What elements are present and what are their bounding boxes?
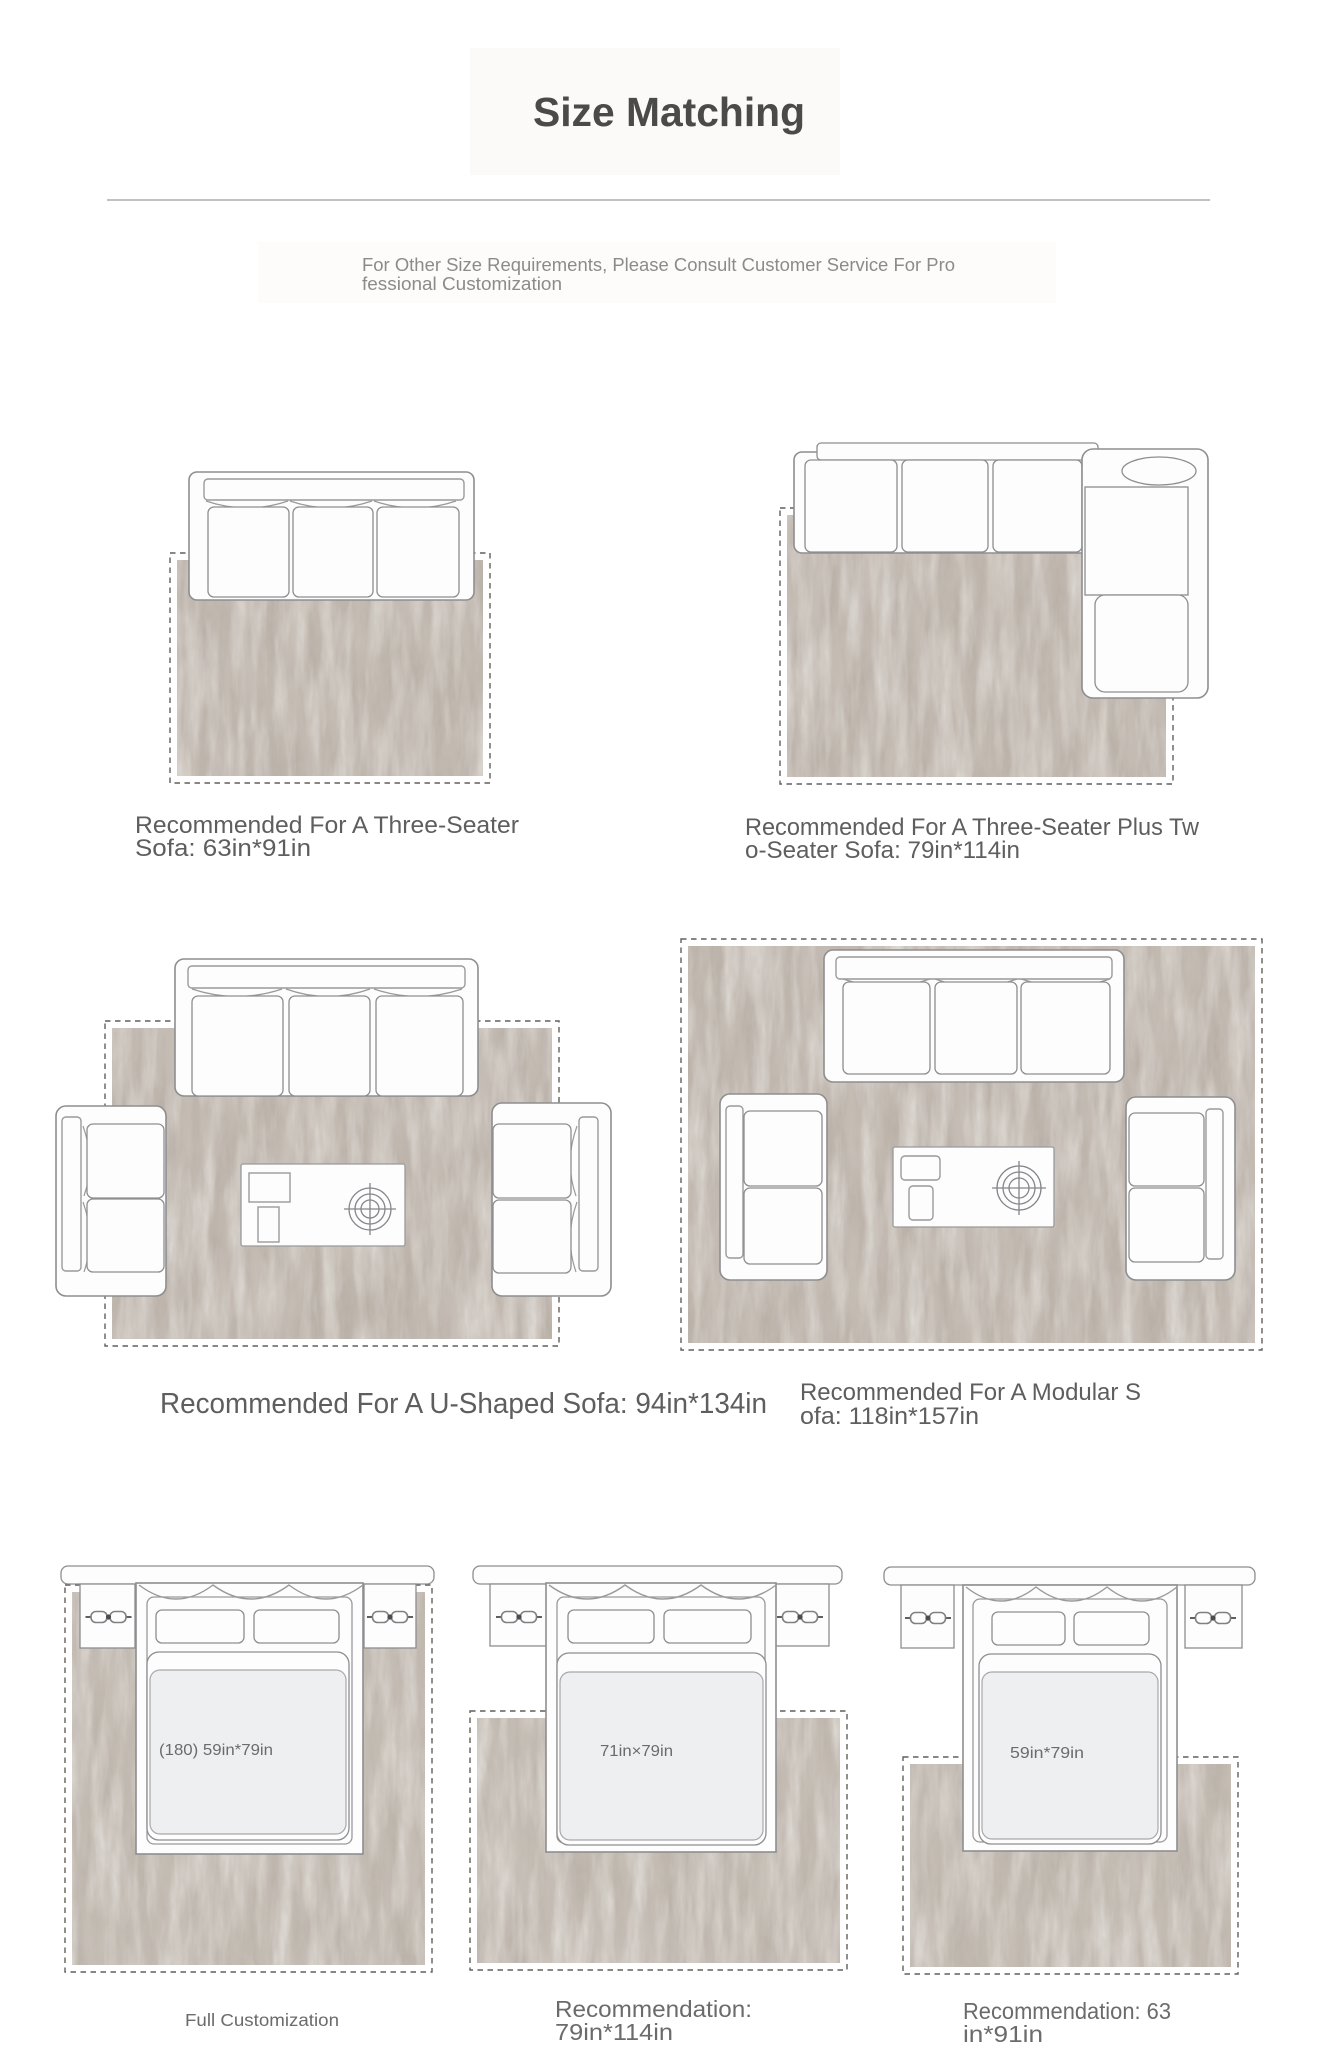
svg-text:Sofa: 63in*91in: Sofa: 63in*91in [135, 835, 311, 862]
svg-text:in*91in: in*91in [963, 2021, 1043, 2047]
svg-text:Recommended For A U-Shaped Sof: Recommended For A U-Shaped Sofa: 94in*13… [160, 1388, 767, 1420]
svg-text:59in*79in: 59in*79in [1010, 1745, 1084, 1762]
svg-text:Size Matching: Size Matching [533, 89, 805, 135]
svg-text:ofa: 118in*157in: ofa: 118in*157in [800, 1403, 979, 1430]
svg-text:(180) 59in*79in: (180) 59in*79in [159, 1742, 273, 1759]
svg-text:Recommended For A Modular S: Recommended For A Modular S [800, 1379, 1141, 1406]
svg-text:Full Customization: Full Customization [185, 2010, 339, 2030]
svg-text:71in×79in: 71in×79in [600, 1743, 673, 1760]
svg-text:For Other Size Requirements, P: For Other Size Requirements, Please Cons… [362, 255, 955, 275]
svg-text:79in*114in: 79in*114in [555, 2019, 673, 2045]
svg-text:fessional Customization: fessional Customization [362, 274, 562, 294]
svg-text:o-Seater Sofa: 79in*114in: o-Seater Sofa: 79in*114in [745, 837, 1020, 864]
